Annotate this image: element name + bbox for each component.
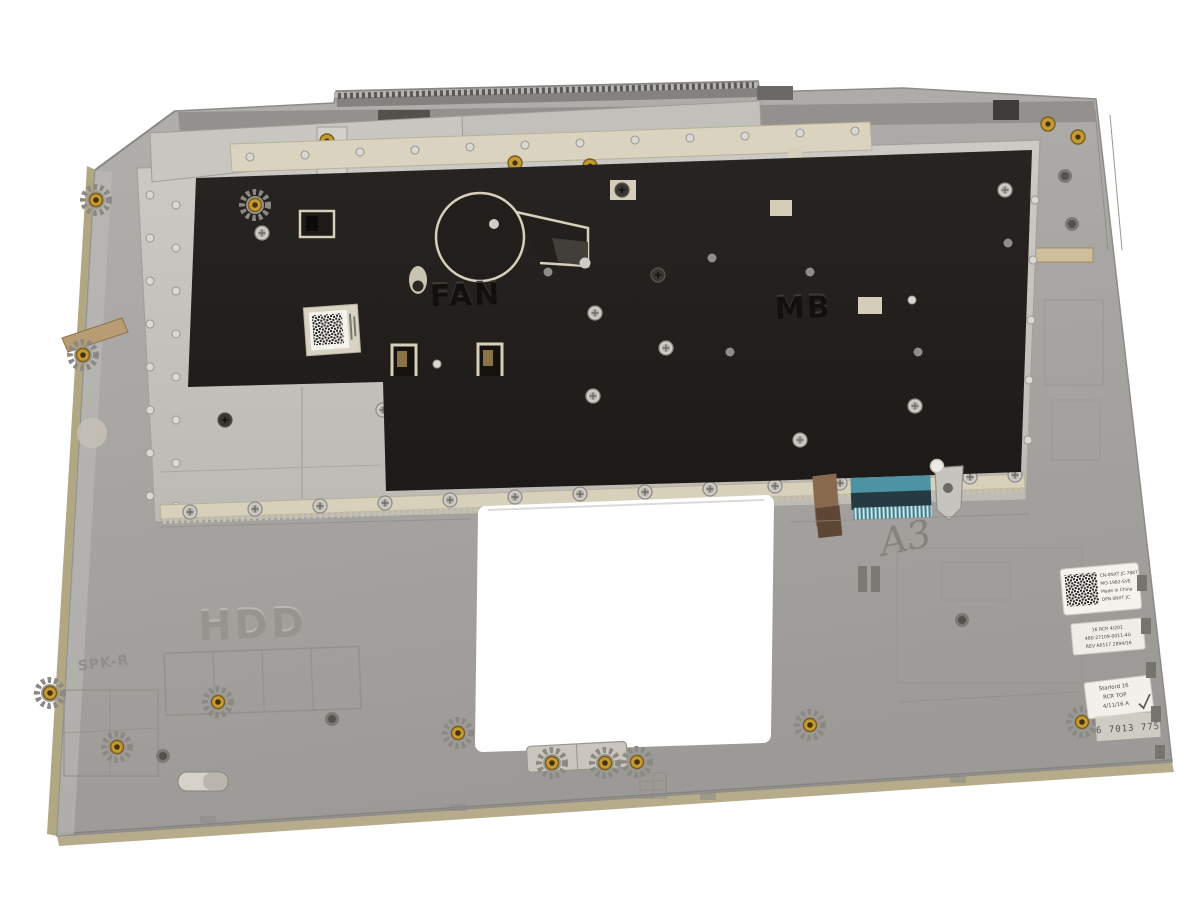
touchpad-opening bbox=[483, 500, 766, 744]
service-label-qr bbox=[1065, 572, 1100, 607]
fan-embossed-label: FAN FAN bbox=[429, 275, 502, 314]
mb-embossed-label: MB MB bbox=[774, 288, 832, 327]
round-sticker bbox=[931, 460, 944, 473]
flex-cable-brown-end bbox=[815, 505, 842, 538]
ink-stamp: 6 7013 775 bbox=[1095, 712, 1161, 741]
hinge-slot-right bbox=[993, 100, 1019, 120]
brass-insert bbox=[1041, 117, 1055, 131]
rail-notch bbox=[757, 86, 793, 100]
slot bbox=[871, 566, 880, 592]
cream-pad bbox=[770, 200, 792, 216]
screw bbox=[218, 413, 232, 427]
cutout-top bbox=[300, 211, 334, 237]
qr-sticker bbox=[303, 304, 360, 356]
slot bbox=[858, 566, 867, 592]
rivet bbox=[433, 360, 441, 368]
cream-pad bbox=[858, 297, 882, 314]
keyhole-standoff bbox=[409, 266, 427, 294]
speaker-mount-circle bbox=[77, 418, 107, 448]
screw-hole bbox=[1065, 217, 1079, 231]
svg-text:HDD: HDD bbox=[197, 600, 307, 650]
qc-label: Starlord 16 RCR TOP 4/11/16 A bbox=[1084, 675, 1154, 719]
chrome-oval-shade bbox=[203, 773, 227, 790]
bracket-cutout-left bbox=[392, 345, 416, 376]
palmrest-photo-canvas: FAN FAN MB MB A3 HDD HDD bbox=[0, 0, 1200, 901]
svg-text:FAN: FAN bbox=[429, 277, 502, 314]
screw bbox=[651, 268, 665, 282]
palmrest-photo: FAN FAN MB MB A3 HDD HDD bbox=[0, 0, 1200, 901]
rivet bbox=[908, 296, 916, 304]
service-label: CN-0NXT JC-7887 MO-1982-SVE Made in Chin… bbox=[1060, 563, 1142, 616]
screw bbox=[615, 183, 629, 197]
brass-insert bbox=[1071, 130, 1085, 144]
screw-hole bbox=[1058, 169, 1072, 183]
part-number-label: 16 RCR 4/201 480-27109-0011-4G REV A0117… bbox=[1071, 618, 1145, 655]
bracket-cutout-right bbox=[478, 344, 502, 376]
svg-text:MB: MB bbox=[774, 290, 832, 327]
